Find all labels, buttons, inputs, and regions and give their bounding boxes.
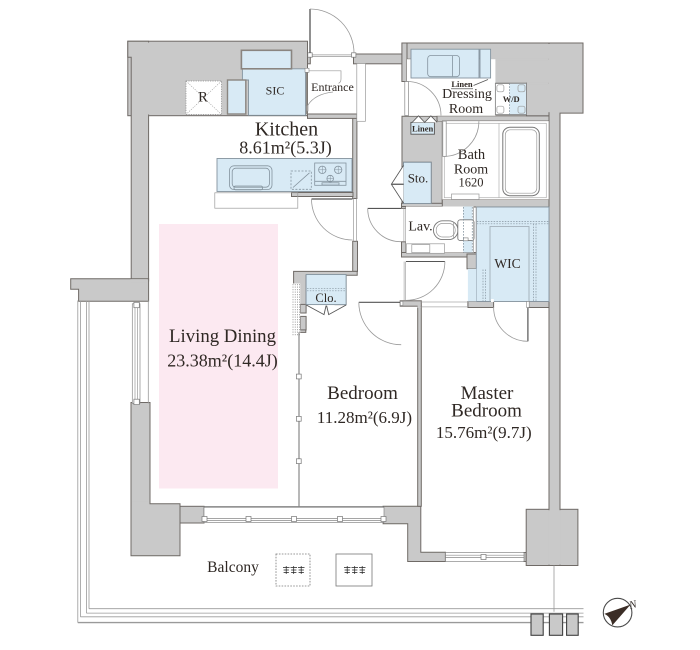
svg-text:Dressing: Dressing xyxy=(442,87,492,102)
svg-text:Living Dining: Living Dining xyxy=(169,326,277,347)
svg-text:1620: 1620 xyxy=(459,176,484,190)
svg-text:11.28m²(6.9J): 11.28m²(6.9J) xyxy=(317,408,412,427)
svg-text:WIC: WIC xyxy=(494,256,520,271)
svg-text:R: R xyxy=(198,89,208,105)
svg-text:Room: Room xyxy=(449,102,483,117)
svg-text:15.76m²(9.7J): 15.76m²(9.7J) xyxy=(436,423,532,442)
svg-text:Entrance: Entrance xyxy=(311,80,354,94)
svg-text:Bedroom: Bedroom xyxy=(451,401,522,422)
svg-text:23.38m²(14.4J): 23.38m²(14.4J) xyxy=(167,351,277,372)
svg-text:Sto.: Sto. xyxy=(408,171,429,186)
svg-text:Clo.: Clo. xyxy=(315,291,336,305)
svg-text:Lav.: Lav. xyxy=(408,220,432,235)
svg-text:Bedroom: Bedroom xyxy=(327,383,398,404)
svg-text:Bath: Bath xyxy=(458,147,486,163)
svg-text:W/D: W/D xyxy=(503,94,520,104)
svg-text:SIC: SIC xyxy=(266,83,285,97)
svg-text:8.61m²(5.3J): 8.61m²(5.3J) xyxy=(239,138,331,159)
svg-text:Balcony: Balcony xyxy=(207,559,259,576)
svg-text:Linen: Linen xyxy=(412,123,434,133)
